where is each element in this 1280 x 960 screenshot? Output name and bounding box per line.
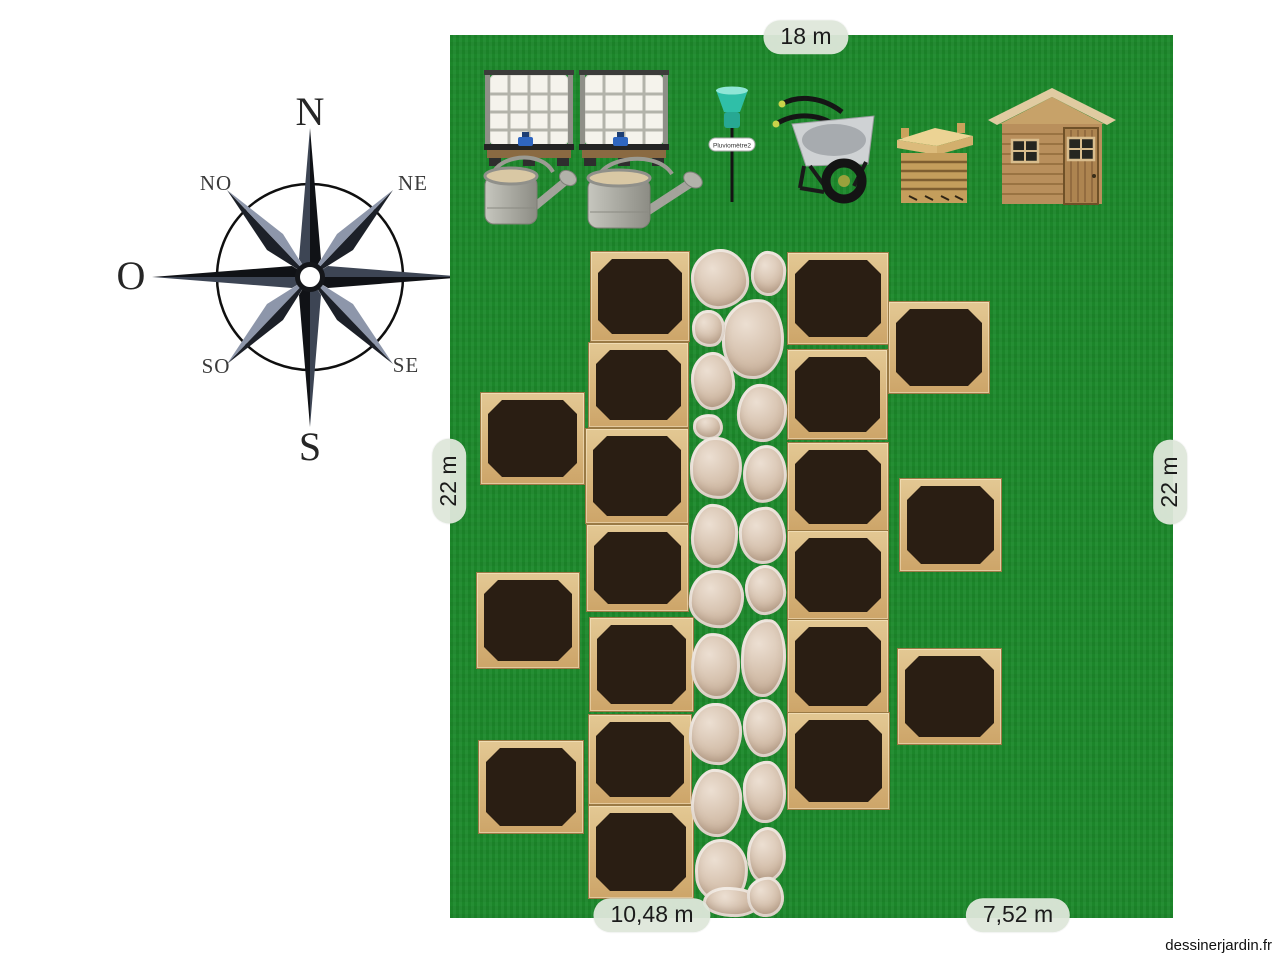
garden-bed[interactable] <box>588 805 694 899</box>
garden-bed[interactable] <box>787 349 888 440</box>
garden-shed[interactable] <box>986 84 1118 215</box>
compass-label-south: S <box>299 424 321 469</box>
garden-bed-soil <box>598 259 682 334</box>
watering-can-1[interactable] <box>477 150 579 235</box>
watering-can-icon <box>580 152 708 234</box>
can-spout <box>533 180 567 208</box>
dimension-label-bottom-right: 7,52 m <box>966 898 1070 932</box>
shed-door-handle <box>1092 174 1096 178</box>
compass-label-southwest: SO <box>202 354 231 378</box>
garden-bed[interactable] <box>590 251 690 342</box>
garden-shed-icon <box>986 84 1118 210</box>
garden-bed-soil <box>905 656 994 737</box>
garden-bed[interactable] <box>480 392 585 485</box>
garden-bed[interactable] <box>787 712 890 810</box>
garden-bed-soil <box>907 486 994 564</box>
watering-can-2[interactable] <box>580 152 708 239</box>
garden-bed-soil <box>795 450 881 524</box>
dimension-label-top: 18 m <box>763 20 848 54</box>
rain-gauge-icon: Pluviomètre2 <box>708 86 756 206</box>
garden-bed-soil <box>596 813 686 891</box>
composter-icon <box>895 120 975 208</box>
garden-bed[interactable] <box>787 619 889 714</box>
garden-bed-soil <box>597 625 686 704</box>
path-stone[interactable] <box>689 436 743 500</box>
garden-bed[interactable] <box>899 478 1002 572</box>
garden-bed-soil <box>594 532 681 604</box>
garden-bed[interactable] <box>585 428 689 524</box>
compass-label-north: N <box>296 89 325 134</box>
garden-planner-canvas: N S O E NO NE SO SE <box>0 0 1280 960</box>
garden-bed-soil <box>795 357 880 432</box>
dimension-label-left: 22 m <box>432 438 466 523</box>
garden-bed-soil <box>795 538 881 612</box>
watering-can-icon <box>477 150 579 230</box>
wheelbarrow-icon <box>770 82 894 204</box>
garden-bed[interactable] <box>589 617 694 712</box>
dimension-label-bottom-left: 10,48 m <box>593 898 710 932</box>
compass-label-northeast: NE <box>398 171 428 195</box>
garden-bed-soil <box>596 722 684 797</box>
gauge-label: Pluviomètre2 <box>713 143 751 150</box>
compass-label-west: O <box>117 253 146 298</box>
path-stone[interactable] <box>742 760 787 823</box>
garden-bed-soil <box>795 627 881 706</box>
compass-rose-icon: N S O E NO NE SO SE <box>113 83 505 475</box>
garden-bed-soil <box>896 309 982 386</box>
garden-bed[interactable] <box>588 714 692 805</box>
rain-gauge[interactable]: Pluviomètre2 <box>708 86 756 211</box>
garden-bed[interactable] <box>897 648 1002 745</box>
garden-bed-soil <box>795 720 882 802</box>
dimension-label-right: 22 m <box>1153 439 1187 524</box>
garden-bed-soil <box>486 748 576 826</box>
garden-bed-soil <box>795 260 881 337</box>
garden-bed[interactable] <box>787 252 889 345</box>
compass-label-northwest: NO <box>200 171 232 195</box>
tank-valve <box>518 137 533 146</box>
garden-bed[interactable] <box>588 342 689 428</box>
garden-bed[interactable] <box>888 301 990 394</box>
composter-body <box>901 153 967 203</box>
garden-bed[interactable] <box>586 524 689 612</box>
wheelbarrow[interactable] <box>770 82 894 209</box>
compass-label-southeast: SE <box>393 353 420 377</box>
garden-bed[interactable] <box>787 442 889 532</box>
garden-bed[interactable] <box>476 572 580 669</box>
garden-bed-soil <box>488 400 577 477</box>
composter[interactable] <box>895 120 975 213</box>
path-stone[interactable] <box>690 632 741 700</box>
garden-bed[interactable] <box>478 740 584 834</box>
garden-bed-soil <box>596 350 681 420</box>
garden-bed[interactable] <box>787 530 889 620</box>
garden-bed-soil <box>484 580 572 661</box>
compass-hub <box>298 265 323 290</box>
site-watermark: dessinerjardin.fr <box>1165 937 1272 954</box>
garden-bed-soil <box>593 436 681 516</box>
